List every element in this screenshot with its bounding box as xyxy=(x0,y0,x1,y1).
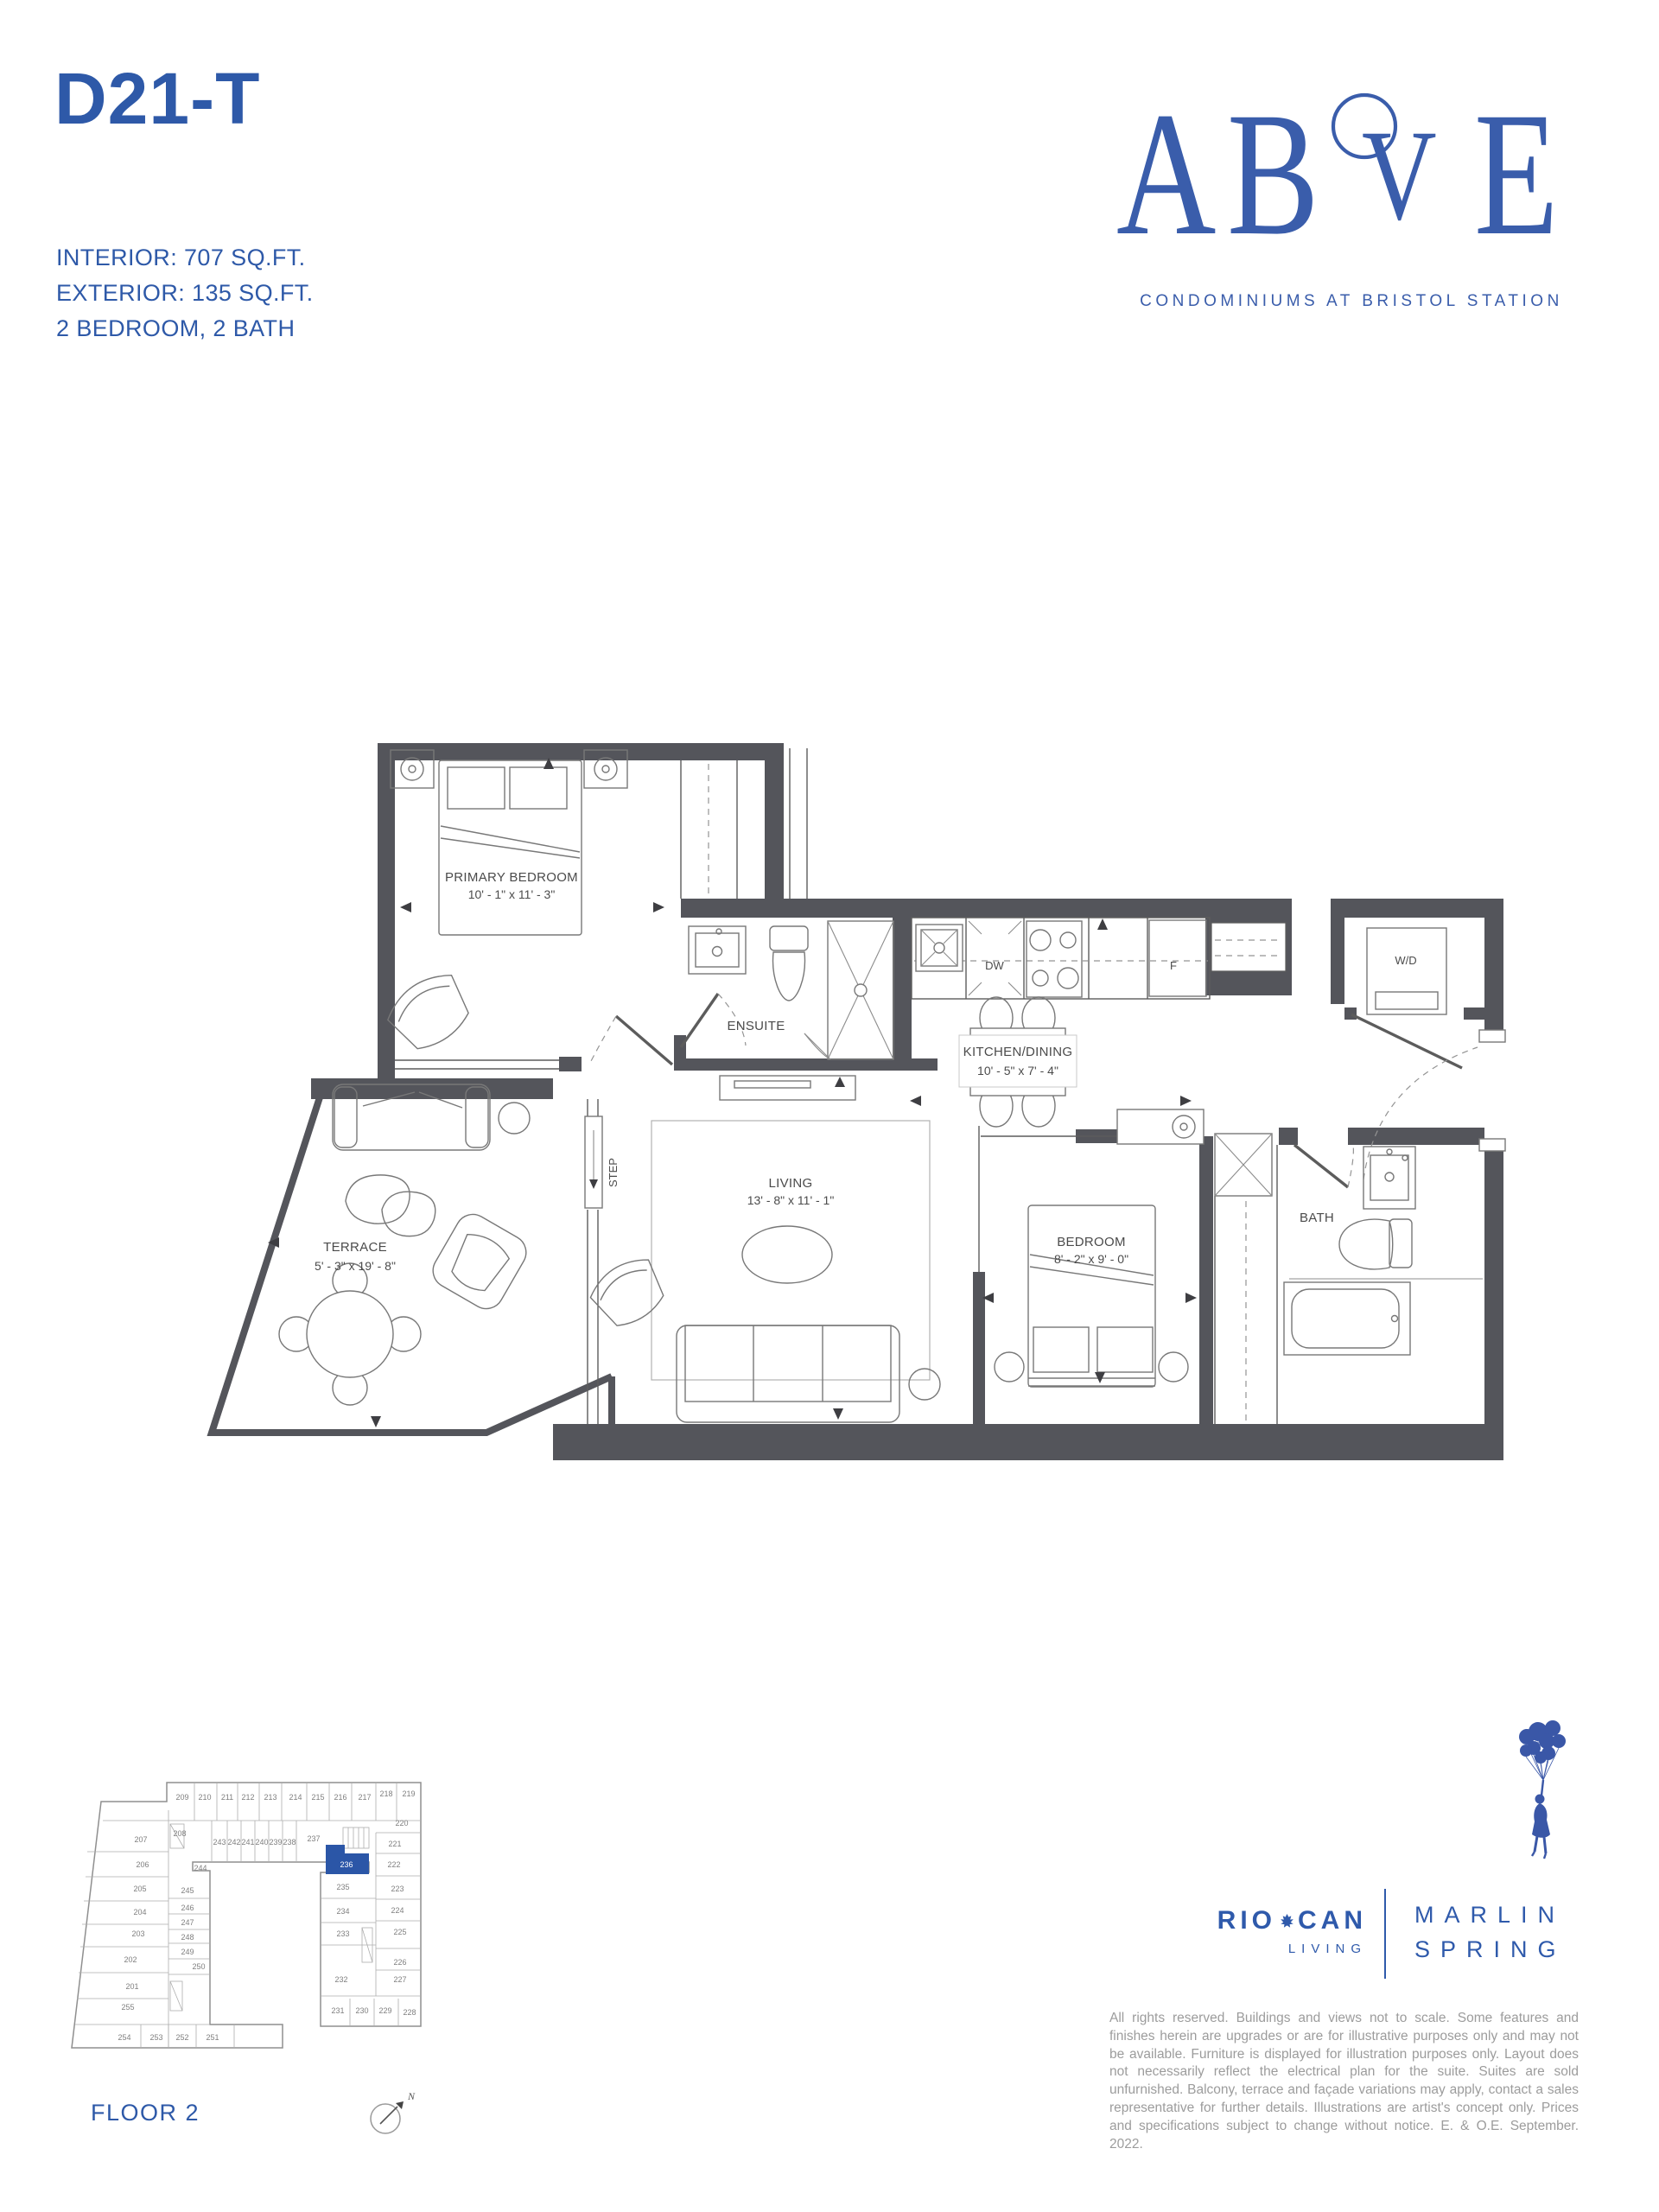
keyplan-unit-253: 253 xyxy=(149,2033,162,2042)
dims-kitchen-dining: 10' - 5" x 7' - 4" xyxy=(977,1064,1058,1077)
keyplan-unit-222: 222 xyxy=(387,1860,400,1869)
keyplan-unit-221: 221 xyxy=(388,1840,401,1848)
keyplan-unit-230: 230 xyxy=(355,2006,368,2015)
label-terrace: TERRACE xyxy=(323,1240,387,1255)
spec-exterior: EXTERIOR: 135 SQ.FT. xyxy=(56,276,314,311)
brand-tagline: CONDOMINIUMS AT BRISTOL STATION xyxy=(1118,292,1585,311)
keyplan-unit-252: 252 xyxy=(175,2033,188,2042)
keyplan-unit-247: 247 xyxy=(181,1918,194,1927)
keyplan-unit-226: 226 xyxy=(393,1958,406,1967)
keyplan-unit-201: 201 xyxy=(125,1982,138,1991)
logo-letter-e: E xyxy=(1474,86,1559,263)
compass-n-label: N xyxy=(407,2090,416,2102)
keyplan-unit-233: 233 xyxy=(336,1929,349,1938)
keyplan-unit-214: 214 xyxy=(289,1793,302,1802)
keyplan-unit-210: 210 xyxy=(198,1793,211,1802)
keyplan-unit-236: 236 xyxy=(340,1860,353,1869)
keyplan-unit-211: 211 xyxy=(221,1793,233,1802)
keyplan-unit-227: 227 xyxy=(393,1975,406,1984)
keyplan-unit-203: 203 xyxy=(131,1929,144,1938)
balloon-girl-icon xyxy=(1503,1713,1578,1859)
unit-specs: INTERIOR: 707 SQ.FT. EXTERIOR: 135 SQ.FT… xyxy=(56,240,314,346)
keyplan-unit-213: 213 xyxy=(264,1793,276,1802)
spec-interior: INTERIOR: 707 SQ.FT. xyxy=(56,240,314,276)
keyplan: 2092102112122132142152162172182192202082… xyxy=(65,1776,436,2052)
keyplan-unit-251: 251 xyxy=(206,2033,219,2042)
label-step: STEP xyxy=(607,1158,620,1187)
keyplan-unit-229: 229 xyxy=(378,2006,391,2015)
floorplan-drawing: PRIMARY BEDROOM 10' - 1" x 11' - 3" ENSU… xyxy=(199,743,1529,1503)
dims-living: 13' - 8" x 11' - 1" xyxy=(747,1193,835,1207)
terrace-boundary xyxy=(212,1097,612,1433)
logo-letter-v: V xyxy=(1362,111,1437,240)
label-dw: DW xyxy=(985,959,1004,972)
keyplan-unit-228: 228 xyxy=(403,2008,416,2017)
keyplan-unit-225: 225 xyxy=(393,1928,406,1936)
label-primary-bedroom: PRIMARY BEDROOM xyxy=(445,870,578,885)
dims-terrace: 5' - 3" x 19' - 8" xyxy=(315,1259,396,1273)
keyplan-unit-245: 245 xyxy=(181,1886,194,1895)
logo-letter-b: B xyxy=(1227,86,1319,263)
riocan-living: LIVING xyxy=(1168,1942,1367,1956)
keyplan-unit-254: 254 xyxy=(118,2033,130,2042)
keyplan-unit-244: 244 xyxy=(194,1864,207,1872)
keyplan-unit-216: 216 xyxy=(334,1793,346,1802)
riocan-rio: RIO xyxy=(1217,1906,1276,1935)
keyplan-unit-242: 242 xyxy=(227,1838,240,1847)
keyplan-unit-209: 209 xyxy=(175,1793,188,1802)
spec-layout: 2 BEDROOM, 2 BATH xyxy=(56,311,314,346)
logo-divider xyxy=(1384,1889,1386,1979)
label-kitchen-dining: KITCHEN/DINING xyxy=(963,1045,1073,1059)
logo-letter-a: A xyxy=(1116,86,1216,263)
keyplan-unit-232: 232 xyxy=(334,1975,347,1984)
keyplan-unit-231: 231 xyxy=(331,2006,344,2015)
riocan-logo: RIO CAN LIVING xyxy=(1168,1906,1367,1956)
marlin-spring-logo: MARLIN SPRING xyxy=(1414,1897,1567,1967)
keyplan-highlight-236 xyxy=(326,1845,369,1874)
label-ensuite: ENSUITE xyxy=(727,1019,785,1033)
maple-leaf-icon xyxy=(1280,1914,1294,1929)
label-fridge: F xyxy=(1170,959,1177,972)
keyplan-unit-246: 246 xyxy=(181,1904,194,1912)
keyplan-unit-202: 202 xyxy=(124,1955,137,1964)
keyplan-unit-237: 237 xyxy=(307,1834,320,1843)
dining-set xyxy=(959,997,1077,1127)
keyplan-unit-243: 243 xyxy=(213,1838,226,1847)
keyplan-unit-255: 255 xyxy=(121,2003,134,2012)
unit-model-title: D21-T xyxy=(54,57,260,141)
keyplan-unit-208: 208 xyxy=(173,1829,186,1838)
keyplan-unit-204: 204 xyxy=(133,1908,146,1916)
keyplan-unit-234: 234 xyxy=(336,1907,349,1916)
label-living: LIVING xyxy=(769,1176,813,1191)
keyplan-unit-212: 212 xyxy=(241,1793,254,1802)
keyplan-unit-238: 238 xyxy=(283,1838,296,1847)
dims-bedroom: 8' - 2" x 9' - 0" xyxy=(1054,1252,1128,1266)
keyplan-unit-249: 249 xyxy=(181,1948,194,1956)
keyplan-unit-217: 217 xyxy=(358,1793,371,1802)
keyplan-unit-239: 239 xyxy=(269,1838,282,1847)
keyplan-unit-248: 248 xyxy=(181,1933,194,1942)
floorplan-sheet: D21-T INTERIOR: 707 SQ.FT. EXTERIOR: 135… xyxy=(0,0,1659,2212)
keyplan-unit-218: 218 xyxy=(379,1789,392,1798)
keyplan-unit-250: 250 xyxy=(192,1962,205,1971)
windows-partitions xyxy=(395,748,1505,1424)
keyplan-unit-224: 224 xyxy=(391,1906,404,1915)
keyplan-unit-241: 241 xyxy=(241,1838,254,1847)
primary-bedroom-furniture xyxy=(380,750,672,1065)
keyplan-unit-220: 220 xyxy=(395,1819,408,1827)
label-bedroom: BEDROOM xyxy=(1057,1235,1126,1249)
bath-fixtures xyxy=(1284,1145,1483,1355)
compass-icon: N xyxy=(354,2081,423,2150)
disclaimer-text: All rights reserved. Buildings and views… xyxy=(1109,2010,1579,2153)
bedroom-furniture xyxy=(995,1134,1272,1387)
keyplan-unit-215: 215 xyxy=(311,1793,324,1802)
kitchen-counter xyxy=(912,918,1210,999)
keyplan-unit-219: 219 xyxy=(402,1789,415,1798)
dims-primary-bedroom: 10' - 1" x 11' - 3" xyxy=(468,887,556,901)
keyplan-unit-205: 205 xyxy=(133,1885,146,1893)
living-furniture xyxy=(584,1116,940,1422)
keyplan-unit-240: 240 xyxy=(255,1838,268,1847)
keyplan-units: 2092102112122132142152162172182192202082… xyxy=(118,1789,416,2042)
keyplan-unit-235: 235 xyxy=(336,1883,349,1891)
terrace-furniture xyxy=(279,1084,532,1405)
floor-label: FLOOR 2 xyxy=(91,2100,200,2126)
marlin-line1: MARLIN xyxy=(1414,1897,1567,1932)
label-wd: W/D xyxy=(1395,954,1416,967)
keyplan-unit-223: 223 xyxy=(391,1885,404,1893)
keyplan-unit-206: 206 xyxy=(136,1860,149,1869)
bedroom-console xyxy=(1117,1109,1204,1144)
keyplan-unit-207: 207 xyxy=(134,1835,147,1844)
marlin-line2: SPRING xyxy=(1414,1932,1567,1967)
ensuite-fixtures xyxy=(681,921,893,1100)
riocan-can: CAN xyxy=(1298,1906,1367,1935)
label-bath: BATH xyxy=(1300,1211,1334,1225)
